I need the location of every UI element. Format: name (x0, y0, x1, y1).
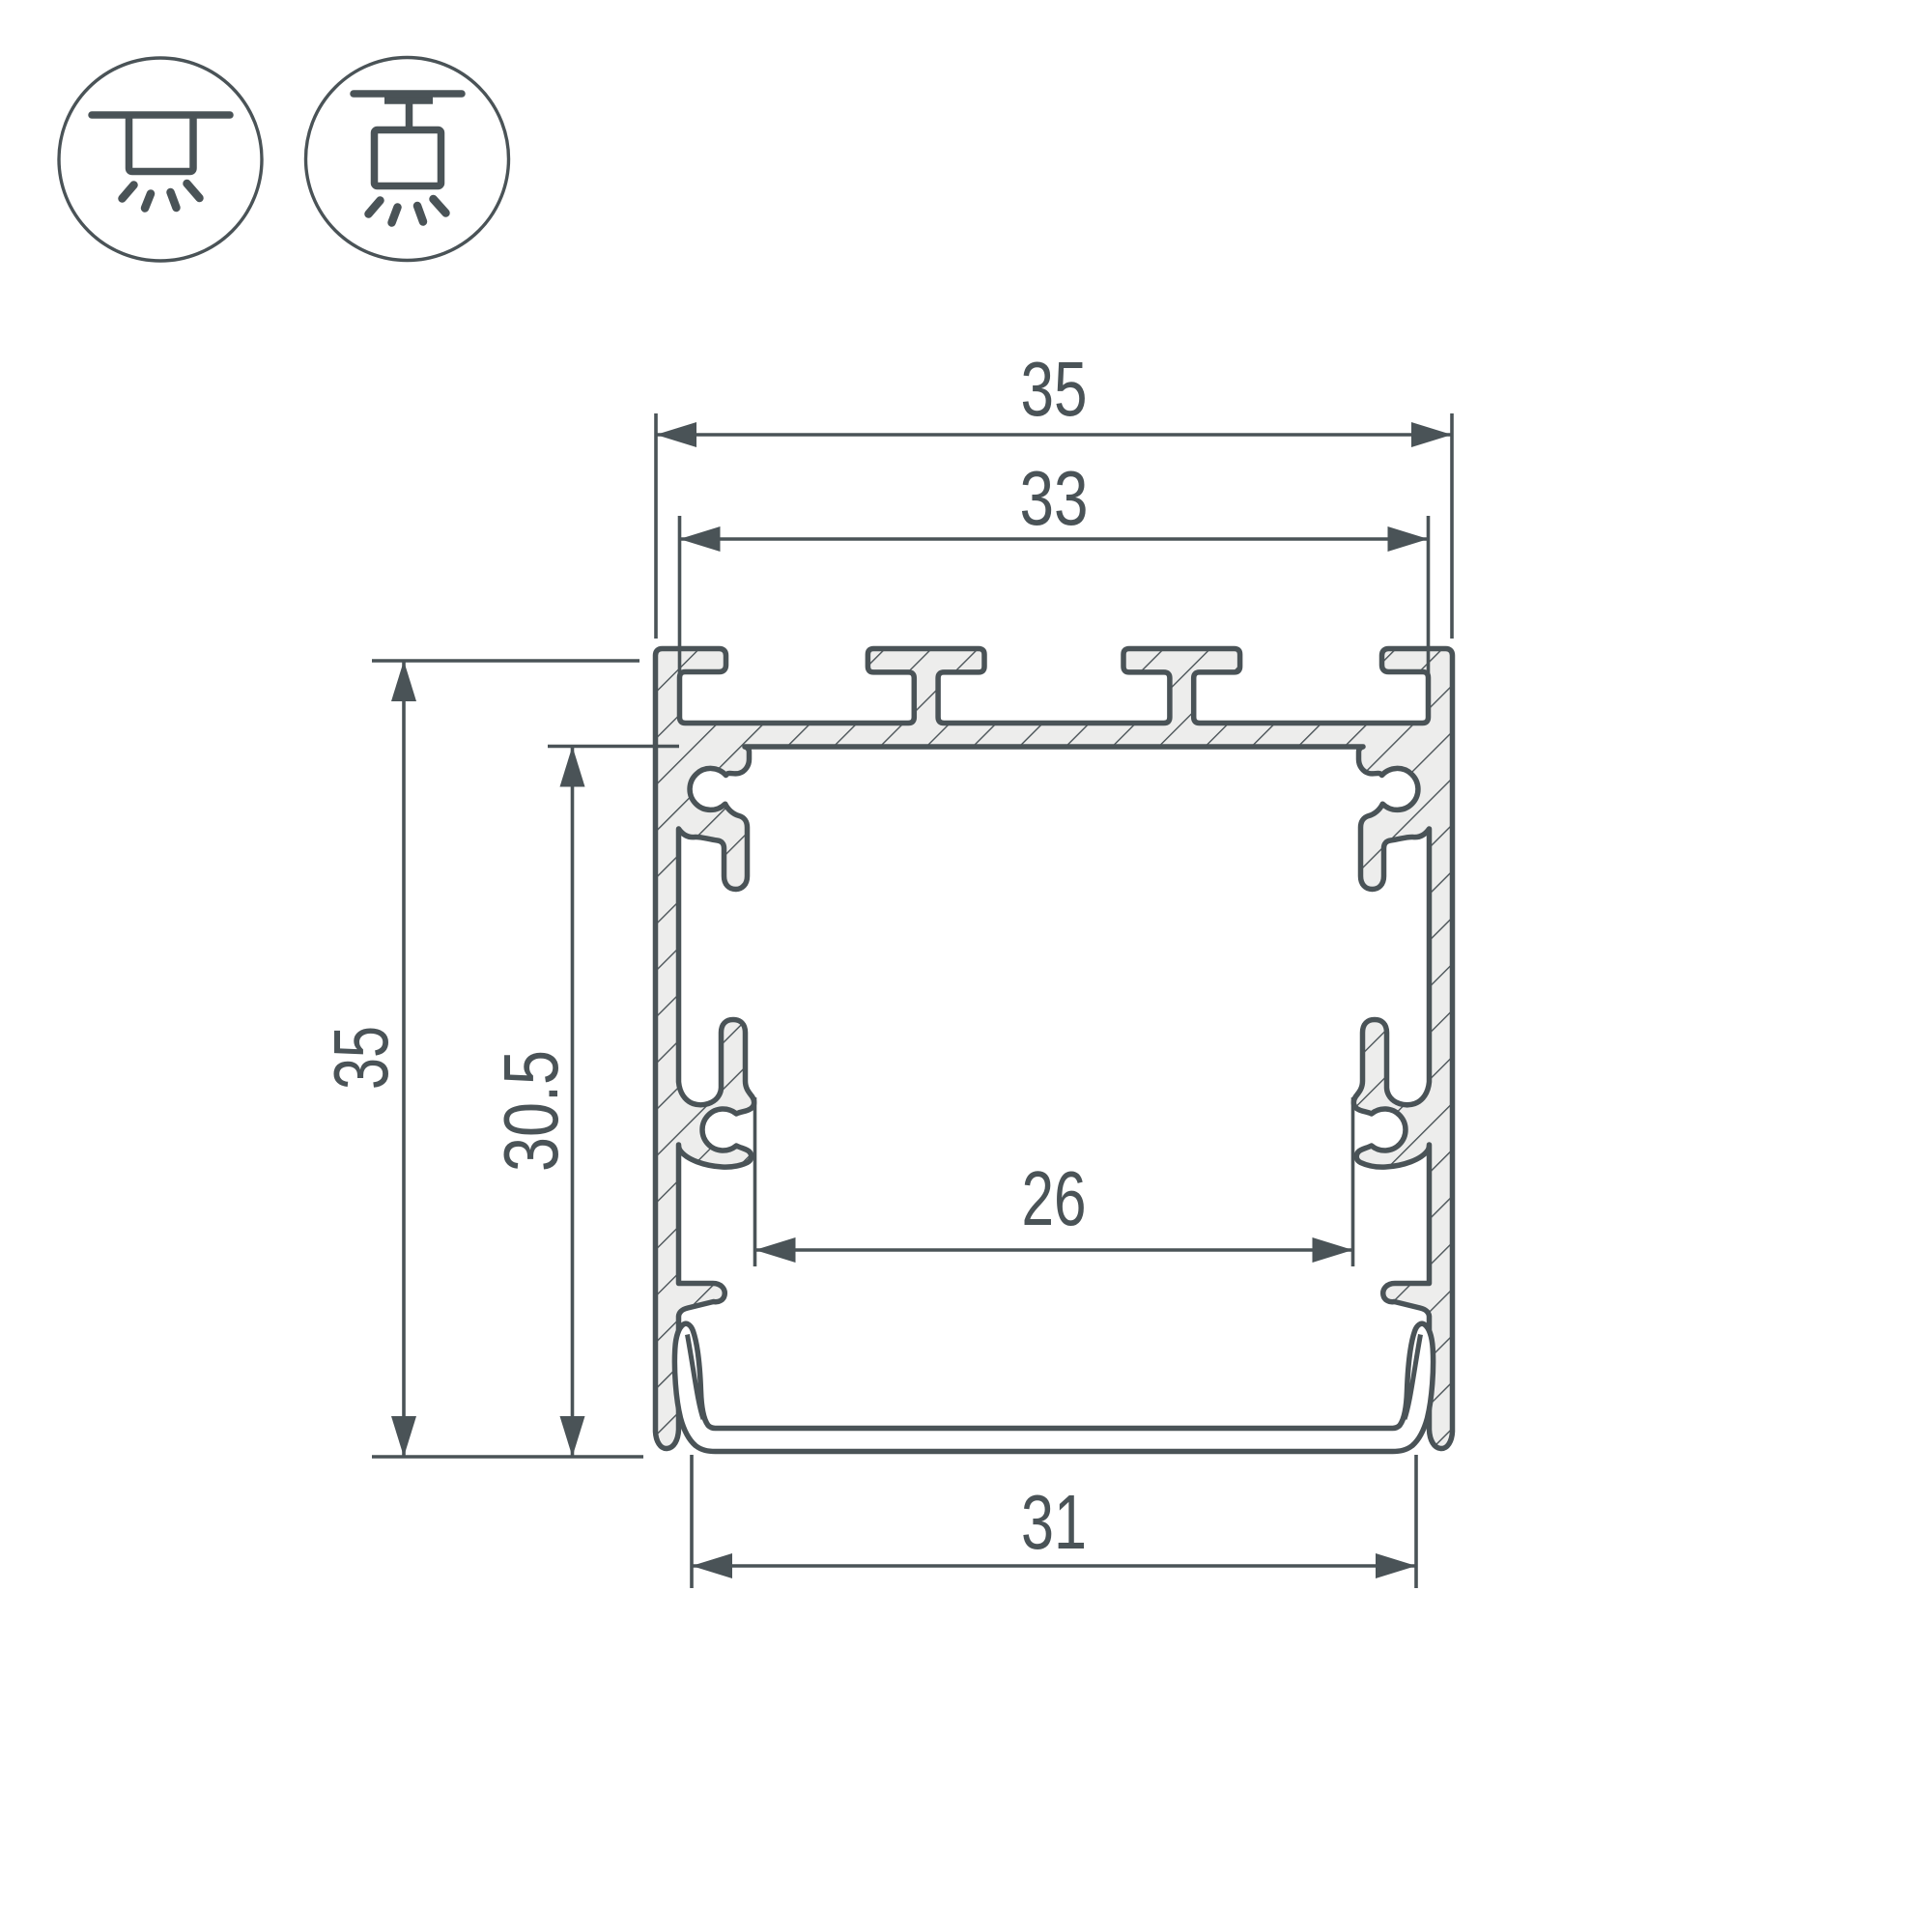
svg-text:33: 33 (1020, 455, 1089, 541)
svg-text:31: 31 (1021, 1479, 1087, 1565)
svg-text:26: 26 (1022, 1155, 1087, 1241)
svg-text:35: 35 (318, 1026, 404, 1090)
svg-text:35: 35 (1021, 346, 1088, 432)
svg-text:30.5: 30.5 (488, 1050, 574, 1172)
